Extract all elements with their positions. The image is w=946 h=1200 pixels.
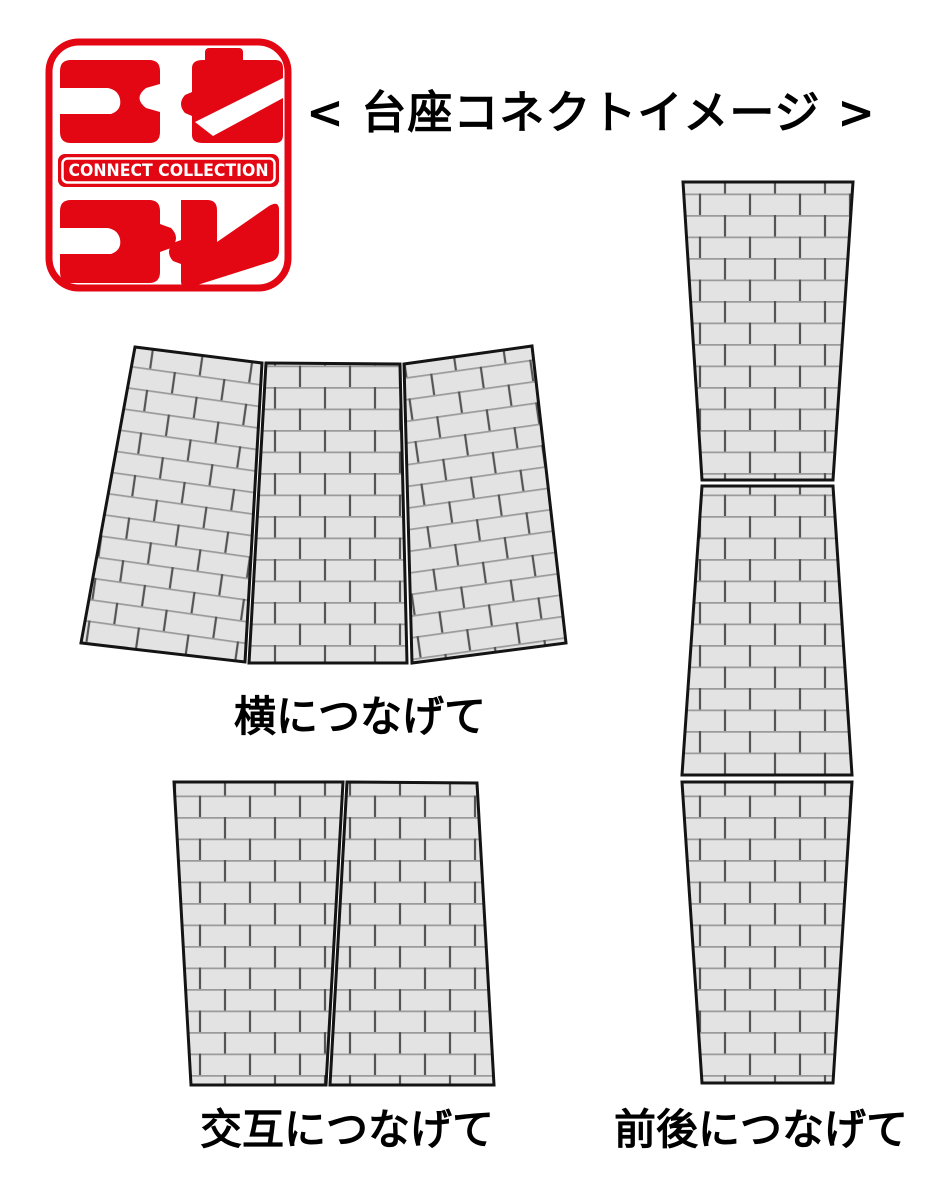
fan-left-panel xyxy=(81,347,262,662)
diagram-horizontal-connect xyxy=(81,346,566,663)
page: CONNECT COLLECTION < 台座コネクトイメージ > xyxy=(0,0,946,1200)
stack-bottom-panel xyxy=(682,782,852,1083)
alternate-right-panel xyxy=(330,782,494,1085)
fan-right-panel xyxy=(404,346,566,663)
stack-middle-panel xyxy=(682,486,852,775)
caption-horizontal-connect: 横につなげて xyxy=(110,683,610,744)
diagram-front-back-connect xyxy=(682,182,853,1083)
stack-top-panel xyxy=(683,182,853,480)
caption-front-back-connect: 前後につなげて xyxy=(511,1096,946,1157)
diagram-alternate-connect xyxy=(174,782,494,1085)
fan-center-panel xyxy=(249,363,407,663)
alternate-left-panel xyxy=(174,782,343,1085)
diagram-canvas xyxy=(0,0,946,1200)
